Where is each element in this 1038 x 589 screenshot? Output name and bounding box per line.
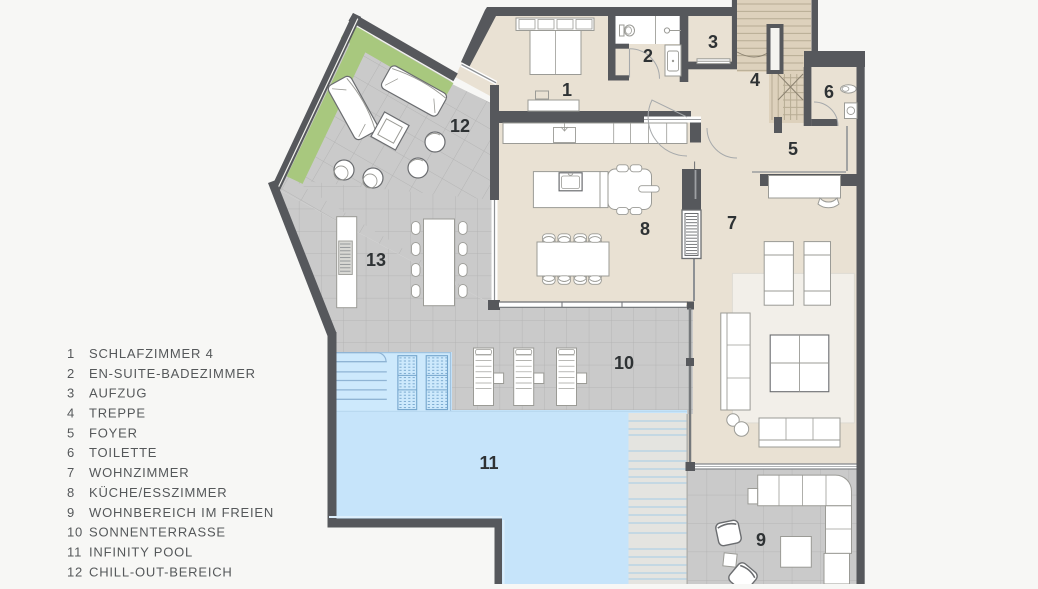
svg-text:SONNENTERRASSE: SONNENTERRASSE (89, 525, 226, 540)
svg-text:2: 2 (67, 366, 75, 381)
svg-text:KÜCHE/ESSZIMMER: KÜCHE/ESSZIMMER (89, 485, 227, 500)
svg-text:6: 6 (824, 82, 834, 102)
svg-text:4: 4 (67, 406, 75, 421)
svg-text:1: 1 (562, 80, 572, 100)
svg-text:8: 8 (67, 485, 75, 500)
svg-text:11: 11 (479, 453, 498, 473)
svg-text:7: 7 (67, 465, 75, 480)
svg-text:TOILETTE: TOILETTE (89, 445, 157, 460)
svg-text:6: 6 (67, 445, 75, 460)
svg-text:TREPPE: TREPPE (89, 406, 146, 421)
svg-text:13: 13 (366, 250, 386, 270)
svg-text:SCHLAFZIMMER 4: SCHLAFZIMMER 4 (89, 346, 214, 361)
svg-text:5: 5 (67, 425, 75, 440)
svg-text:8: 8 (640, 219, 650, 239)
svg-text:3: 3 (708, 32, 718, 52)
svg-text:3: 3 (67, 386, 75, 401)
svg-text:EN-SUITE-BADEZIMMER: EN-SUITE-BADEZIMMER (89, 366, 256, 381)
svg-text:2: 2 (643, 46, 653, 66)
svg-text:10: 10 (614, 353, 634, 373)
svg-text:4: 4 (750, 70, 760, 90)
svg-text:7: 7 (727, 213, 737, 233)
svg-text:FOYER: FOYER (89, 425, 138, 440)
svg-text:9: 9 (756, 530, 766, 550)
svg-text:10: 10 (67, 525, 83, 540)
svg-text:12: 12 (67, 564, 83, 579)
svg-text:WOHNZIMMER: WOHNZIMMER (89, 465, 189, 480)
svg-text:5: 5 (788, 139, 798, 159)
svg-text:9: 9 (67, 505, 75, 520)
svg-text:AUFZUG: AUFZUG (89, 386, 147, 401)
svg-text:CHILL-OUT-BEREICH: CHILL-OUT-BEREICH (89, 564, 233, 579)
svg-text:INFINITY POOL: INFINITY POOL (89, 545, 193, 560)
svg-text:12: 12 (450, 116, 470, 136)
svg-text:1: 1 (67, 346, 75, 361)
svg-text:WOHNBEREICH IM FREIEN: WOHNBEREICH IM FREIEN (89, 505, 274, 520)
svg-text:11: 11 (67, 545, 82, 560)
